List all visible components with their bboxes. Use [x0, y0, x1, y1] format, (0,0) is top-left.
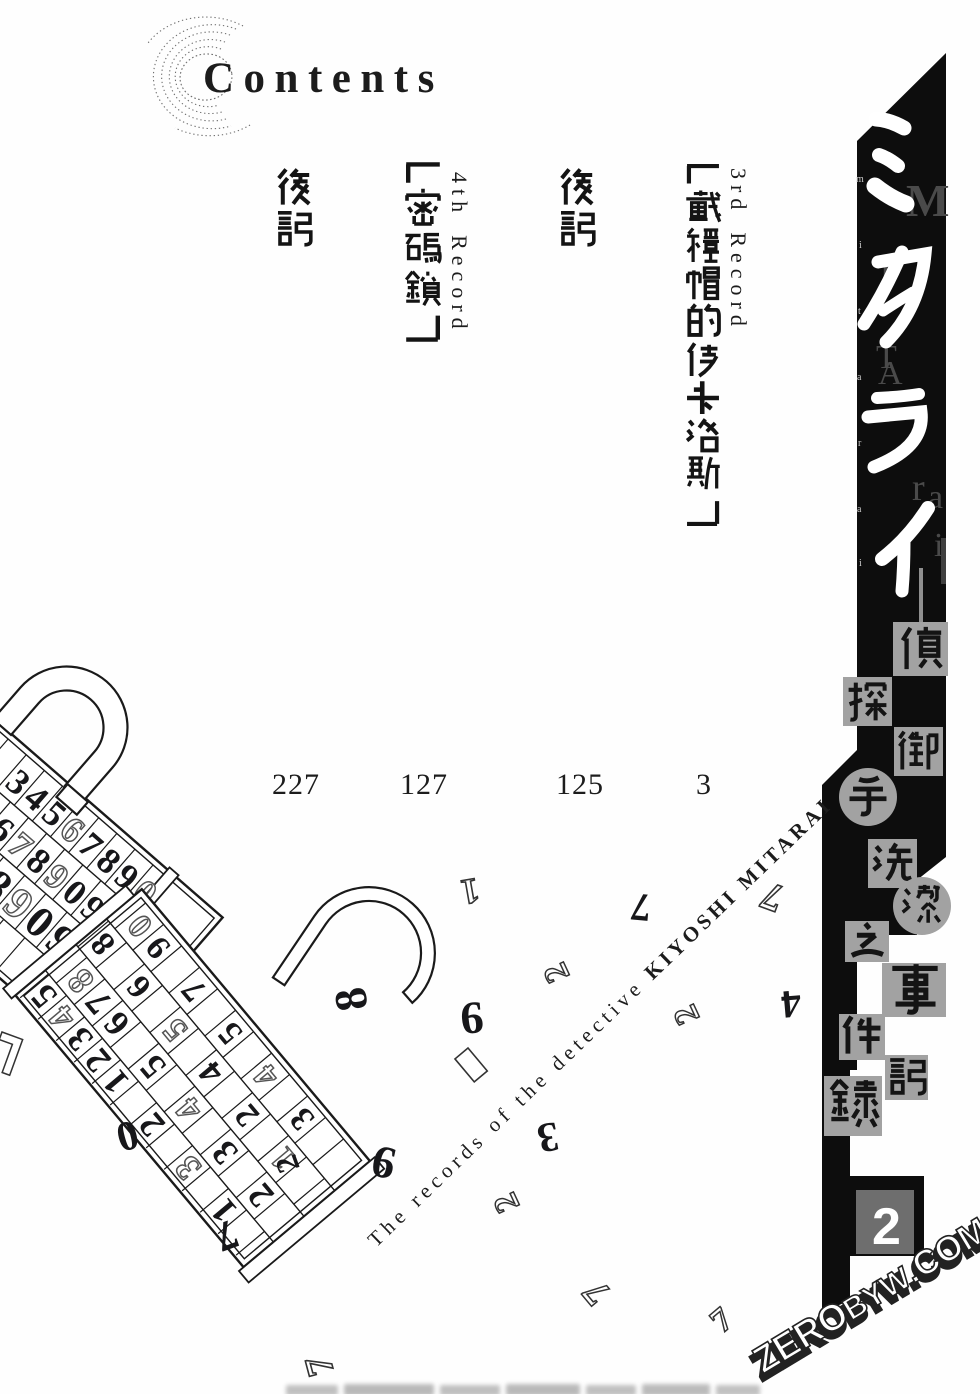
svg-text:2: 2	[872, 1198, 901, 1256]
svg-text:2: 2	[667, 999, 708, 1030]
svg-text:Contents: Contents	[203, 55, 444, 102]
svg-text:i: i	[859, 240, 862, 251]
svg-text:7: 7	[703, 1301, 740, 1340]
svg-text:7: 7	[629, 884, 653, 931]
svg-text:a: a	[857, 372, 862, 383]
svg-text:4: 4	[779, 981, 803, 1028]
svg-text:8: 8	[324, 984, 378, 1016]
svg-text:127: 127	[400, 768, 448, 801]
svg-text:227: 227	[272, 768, 320, 801]
svg-text:3: 3	[696, 768, 711, 801]
svg-text:9: 9	[367, 1135, 400, 1190]
svg-text:a: a	[857, 504, 862, 515]
svg-text:t: t	[858, 306, 861, 317]
svg-text:The records of the detective K: The records of the detective KIYOSHI MIT…	[363, 792, 837, 1251]
svg-text:7: 7	[297, 1351, 342, 1380]
svg-text:9: 9	[458, 992, 485, 1045]
svg-text:A: A	[878, 355, 903, 392]
svg-text:2: 2	[537, 957, 578, 988]
svg-text:4th Record: 4th Record	[447, 172, 472, 335]
svg-text:1: 1	[458, 870, 483, 913]
svg-text:3: 3	[534, 1112, 563, 1161]
svg-text:2: 2	[487, 1187, 528, 1218]
svg-text:3rd Record: 3rd Record	[726, 168, 751, 332]
svg-text:125: 125	[556, 768, 604, 801]
svg-text:r: r	[912, 467, 925, 509]
svg-text:7: 7	[575, 1272, 619, 1314]
svg-text:m: m	[856, 174, 864, 185]
svg-text:i: i	[859, 558, 862, 569]
